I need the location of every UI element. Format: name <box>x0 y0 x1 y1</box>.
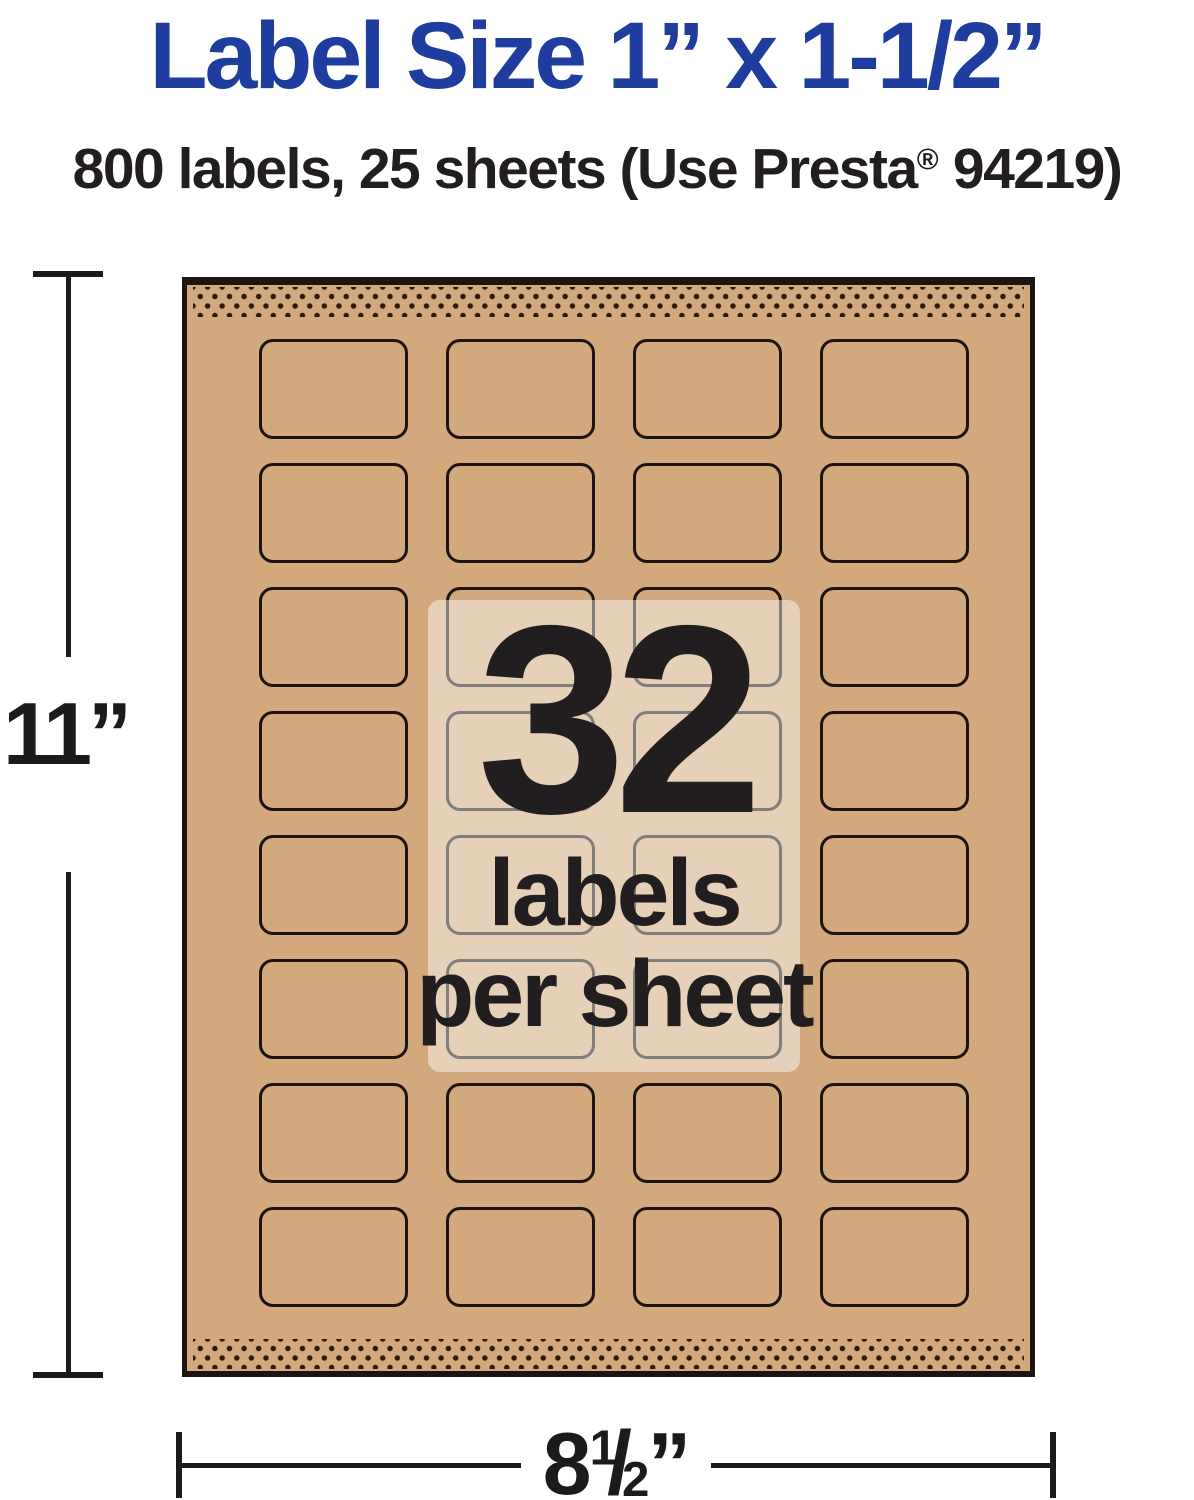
label-cell <box>259 339 408 439</box>
label-cell <box>446 1207 595 1307</box>
label-cell <box>633 463 782 563</box>
labels-per-sheet-caption: 32 labels per sheet <box>367 615 861 1042</box>
label-cell <box>633 1083 782 1183</box>
label-cell <box>446 339 595 439</box>
page-subtitle: 800 labels, 25 sheets (Use Presta® 94219… <box>0 136 1194 202</box>
label-sheet: 32 labels per sheet <box>182 277 1035 1377</box>
width-fraction-denominator: 2 <box>622 1452 647 1500</box>
label-cell <box>633 339 782 439</box>
dimension-line-left <box>182 1463 521 1468</box>
label-cell <box>820 1083 969 1183</box>
registered-trademark-symbol: ® <box>917 144 939 177</box>
dimension-cap-right <box>1050 1432 1056 1498</box>
label-cell <box>820 339 969 439</box>
width-unit-mark: ” <box>647 1414 689 1500</box>
label-cell <box>820 1207 969 1307</box>
width-whole-number: 8 <box>543 1414 590 1500</box>
label-cell <box>259 1207 408 1307</box>
labels-caption-line2: labels <box>367 846 861 941</box>
height-dimension: 11” <box>33 271 103 1378</box>
labels-count: 32 <box>367 615 861 824</box>
label-cell <box>259 463 408 563</box>
label-cell <box>820 463 969 563</box>
subtitle-text-before: 800 labels, 25 sheets (Use Presta <box>73 137 917 201</box>
label-cell <box>259 1083 408 1183</box>
width-dimension: 81/2” <box>176 1428 1056 1500</box>
height-dimension-label: 11” <box>3 683 128 785</box>
dimension-line-lower <box>66 872 71 1372</box>
label-cell <box>446 463 595 563</box>
label-cell <box>633 1207 782 1307</box>
labels-caption-line3: per sheet <box>367 947 861 1042</box>
dimension-line-right <box>711 1463 1050 1468</box>
dimension-line-upper <box>66 277 71 657</box>
label-cell <box>446 1083 595 1183</box>
subtitle-text-after: 94219) <box>939 137 1122 201</box>
page-title: Label Size 1” x 1-1/2” <box>0 2 1194 111</box>
dimension-cap-bottom <box>33 1372 103 1378</box>
product-diagram: Label Size 1” x 1-1/2” 800 labels, 25 sh… <box>0 0 1194 1500</box>
width-dimension-label: 81/2” <box>543 1420 690 1500</box>
